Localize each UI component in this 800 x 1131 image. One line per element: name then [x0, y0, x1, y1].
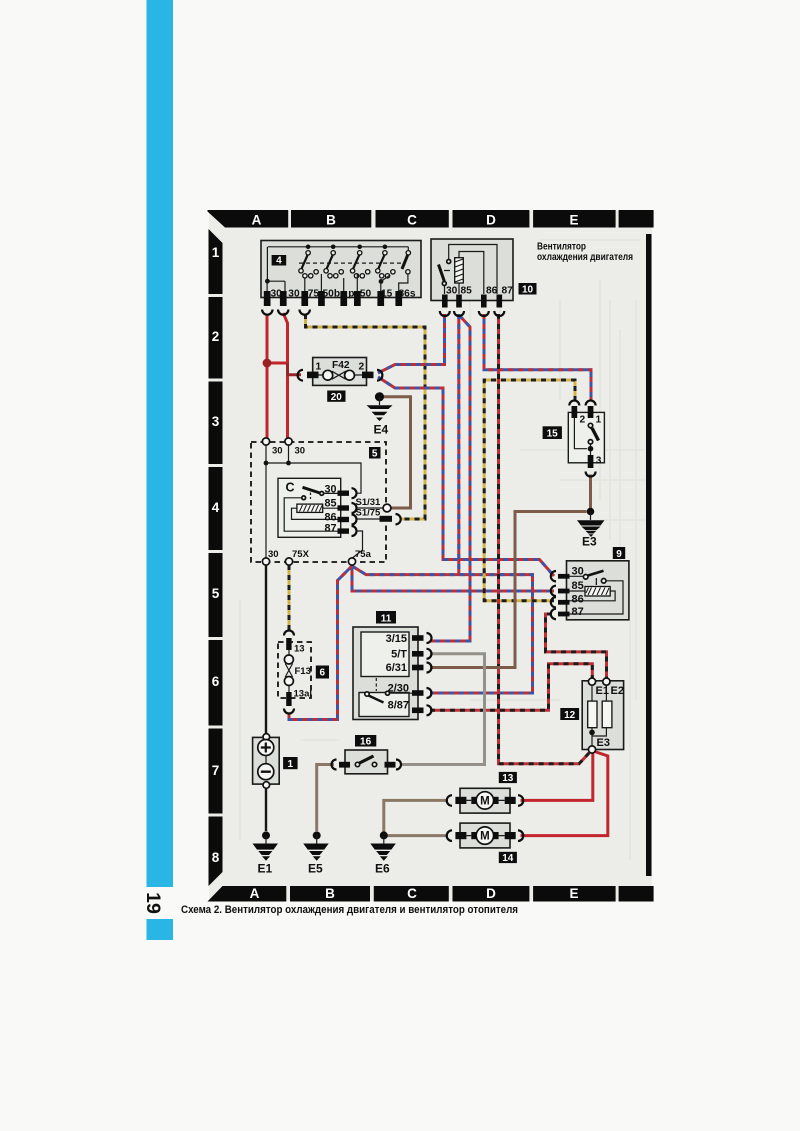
- svg-text:1: 1: [212, 245, 220, 260]
- svg-text:30: 30: [288, 289, 300, 300]
- svg-text:7: 7: [212, 763, 220, 778]
- svg-text:30: 30: [272, 446, 283, 457]
- svg-text:30: 30: [295, 446, 306, 457]
- svg-text:30: 30: [268, 549, 279, 560]
- svg-text:p: p: [348, 289, 354, 300]
- svg-text:4: 4: [212, 500, 220, 515]
- svg-text:85: 85: [461, 286, 473, 297]
- svg-text:E2: E2: [611, 685, 624, 697]
- svg-text:12: 12: [564, 710, 576, 721]
- svg-text:A: A: [250, 886, 260, 901]
- svg-text:E: E: [569, 886, 578, 901]
- svg-text:E3: E3: [597, 737, 610, 749]
- svg-text:75X: 75X: [292, 549, 310, 560]
- svg-text:3: 3: [596, 456, 602, 467]
- svg-text:6/31: 6/31: [386, 662, 407, 674]
- svg-text:19: 19: [142, 892, 164, 914]
- svg-text:M: M: [480, 795, 490, 807]
- svg-text:30: 30: [324, 484, 336, 496]
- svg-text:86: 86: [572, 594, 584, 606]
- svg-text:6: 6: [320, 668, 326, 679]
- svg-text:A: A: [252, 213, 262, 228]
- svg-text:87: 87: [572, 606, 584, 618]
- svg-text:D: D: [486, 213, 496, 228]
- svg-text:87: 87: [502, 286, 514, 297]
- svg-text:F13: F13: [295, 666, 311, 677]
- svg-text:B: B: [326, 213, 336, 228]
- svg-text:E5: E5: [308, 862, 323, 876]
- svg-text:14: 14: [502, 853, 514, 864]
- svg-text:85: 85: [324, 498, 336, 510]
- svg-text:Схема 2. Вентилятор охлаждения: Схема 2. Вентилятор охлаждения двигателя…: [181, 904, 518, 916]
- svg-text:86: 86: [486, 286, 498, 297]
- svg-text:E4: E4: [374, 423, 389, 437]
- svg-text:S1/75: S1/75: [356, 507, 382, 518]
- svg-text:E3: E3: [582, 535, 597, 549]
- svg-text:50b: 50b: [323, 289, 341, 300]
- svg-text:13: 13: [294, 644, 305, 655]
- svg-text:8: 8: [212, 850, 220, 865]
- svg-text:C: C: [286, 481, 295, 495]
- svg-text:85: 85: [572, 580, 584, 592]
- svg-text:30: 30: [446, 286, 458, 297]
- svg-text:86s: 86s: [399, 289, 416, 300]
- svg-text:M: M: [480, 831, 490, 843]
- svg-text:5: 5: [372, 449, 378, 460]
- svg-text:1: 1: [596, 415, 602, 426]
- svg-text:9: 9: [616, 549, 622, 560]
- svg-text:16: 16: [360, 737, 372, 748]
- svg-text:30: 30: [271, 289, 283, 300]
- svg-text:4: 4: [276, 256, 282, 267]
- svg-text:S1/31: S1/31: [356, 497, 382, 508]
- svg-text:2: 2: [580, 415, 586, 426]
- svg-text:2: 2: [212, 329, 220, 344]
- svg-text:13al: 13al: [294, 689, 313, 700]
- svg-text:2: 2: [359, 362, 365, 373]
- svg-text:C: C: [407, 213, 417, 228]
- svg-text:D: D: [486, 886, 496, 901]
- svg-text:5: 5: [212, 586, 220, 601]
- svg-text:15: 15: [381, 289, 393, 300]
- svg-text:11: 11: [381, 614, 392, 625]
- svg-text:3/15: 3/15: [386, 633, 407, 645]
- svg-text:30: 30: [572, 566, 584, 578]
- svg-text:13: 13: [502, 773, 514, 784]
- svg-text:3: 3: [212, 414, 220, 429]
- svg-text:1: 1: [316, 362, 322, 373]
- svg-text:50: 50: [360, 289, 372, 300]
- svg-text:B: B: [325, 886, 335, 901]
- svg-text:E: E: [569, 213, 578, 228]
- svg-text:1: 1: [288, 759, 294, 770]
- svg-text:75: 75: [308, 289, 320, 300]
- svg-text:10: 10: [522, 285, 534, 296]
- svg-text:15: 15: [547, 429, 559, 440]
- svg-text:охлаждения двигателя: охлаждения двигателя: [537, 252, 633, 263]
- svg-text:E1: E1: [258, 862, 273, 876]
- svg-text:E6: E6: [375, 862, 390, 876]
- svg-text:8/87: 8/87: [388, 700, 409, 712]
- svg-text:87: 87: [324, 523, 336, 535]
- svg-text:5/T: 5/T: [391, 649, 407, 661]
- svg-text:E1: E1: [596, 685, 609, 697]
- svg-text:C: C: [407, 886, 417, 901]
- svg-text:6: 6: [212, 674, 220, 689]
- svg-text:86: 86: [324, 511, 336, 523]
- svg-text:F42: F42: [332, 360, 350, 371]
- svg-text:20: 20: [331, 392, 343, 403]
